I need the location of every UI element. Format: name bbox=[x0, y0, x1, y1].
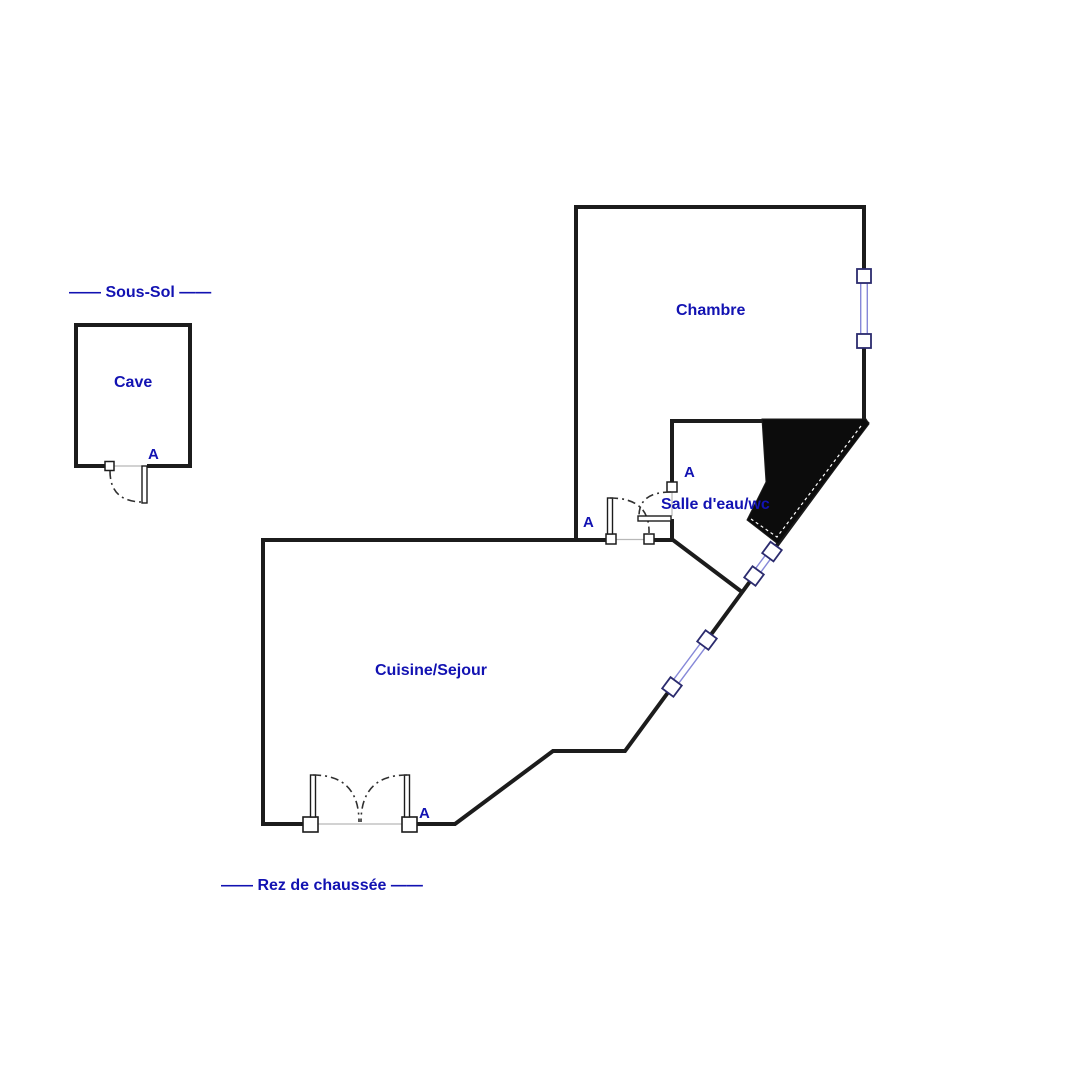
poche-polygon bbox=[747, 419, 869, 544]
door-marker-cave: A bbox=[148, 447, 159, 462]
door-jamb-icon bbox=[606, 534, 616, 544]
section-label-rez-de-chaussee: —— Rez de chaussée —— bbox=[221, 877, 423, 895]
room-label-cave: Cave bbox=[114, 374, 152, 392]
door-marker-chambre-cuisine: A bbox=[583, 515, 594, 530]
room-label-cuisine-sejour: Cuisine/Sejour bbox=[375, 662, 487, 680]
cave-door-jamb-icon bbox=[105, 462, 114, 471]
door-jamb-icon bbox=[644, 534, 654, 544]
door-marker-entrance: A bbox=[419, 806, 430, 821]
window-glazing bbox=[674, 644, 706, 684]
diagonal-window-2 bbox=[662, 630, 717, 697]
cave-door-swing-arc bbox=[110, 471, 141, 502]
window-jamb-icon bbox=[857, 334, 871, 348]
entrance-double-door bbox=[303, 775, 417, 832]
door-marker-salle-eau: A bbox=[684, 465, 695, 480]
door-leaf-right bbox=[405, 775, 410, 817]
floor-plan-drawing bbox=[0, 0, 1089, 1080]
interior-diagonal-wall bbox=[654, 540, 742, 592]
door-leaf bbox=[638, 516, 671, 521]
window-jamb-icon bbox=[857, 269, 871, 283]
door-jamb-icon bbox=[402, 817, 417, 832]
cave-walls bbox=[76, 325, 190, 466]
door-leaf bbox=[608, 498, 613, 534]
door-jamb-icon bbox=[667, 482, 677, 492]
diagonal-window-1 bbox=[744, 542, 782, 586]
diagonal-wall-lower-and-bottom-step bbox=[417, 687, 672, 824]
chambre-outer-walls bbox=[576, 207, 864, 540]
black-wall-poche bbox=[747, 419, 869, 544]
room-label-chambre: Chambre bbox=[676, 302, 745, 320]
room-label-salle-eau: Salle d'eau/wc bbox=[661, 496, 770, 514]
door-leaf-left bbox=[311, 775, 316, 817]
floor-plan-canvas: —— Sous-Sol —— Cave A Chambre A A Salle … bbox=[0, 0, 1089, 1080]
cave-room bbox=[76, 325, 190, 503]
window-glazing bbox=[861, 283, 868, 334]
door-jamb-icon bbox=[303, 817, 318, 832]
door-swing-arc-right bbox=[361, 775, 407, 822]
section-label-sous-sol: —— Sous-Sol —— bbox=[69, 284, 211, 302]
chambre-window bbox=[857, 269, 871, 348]
door-swing-arc-left bbox=[313, 775, 359, 822]
cave-door-leaf bbox=[142, 466, 147, 503]
